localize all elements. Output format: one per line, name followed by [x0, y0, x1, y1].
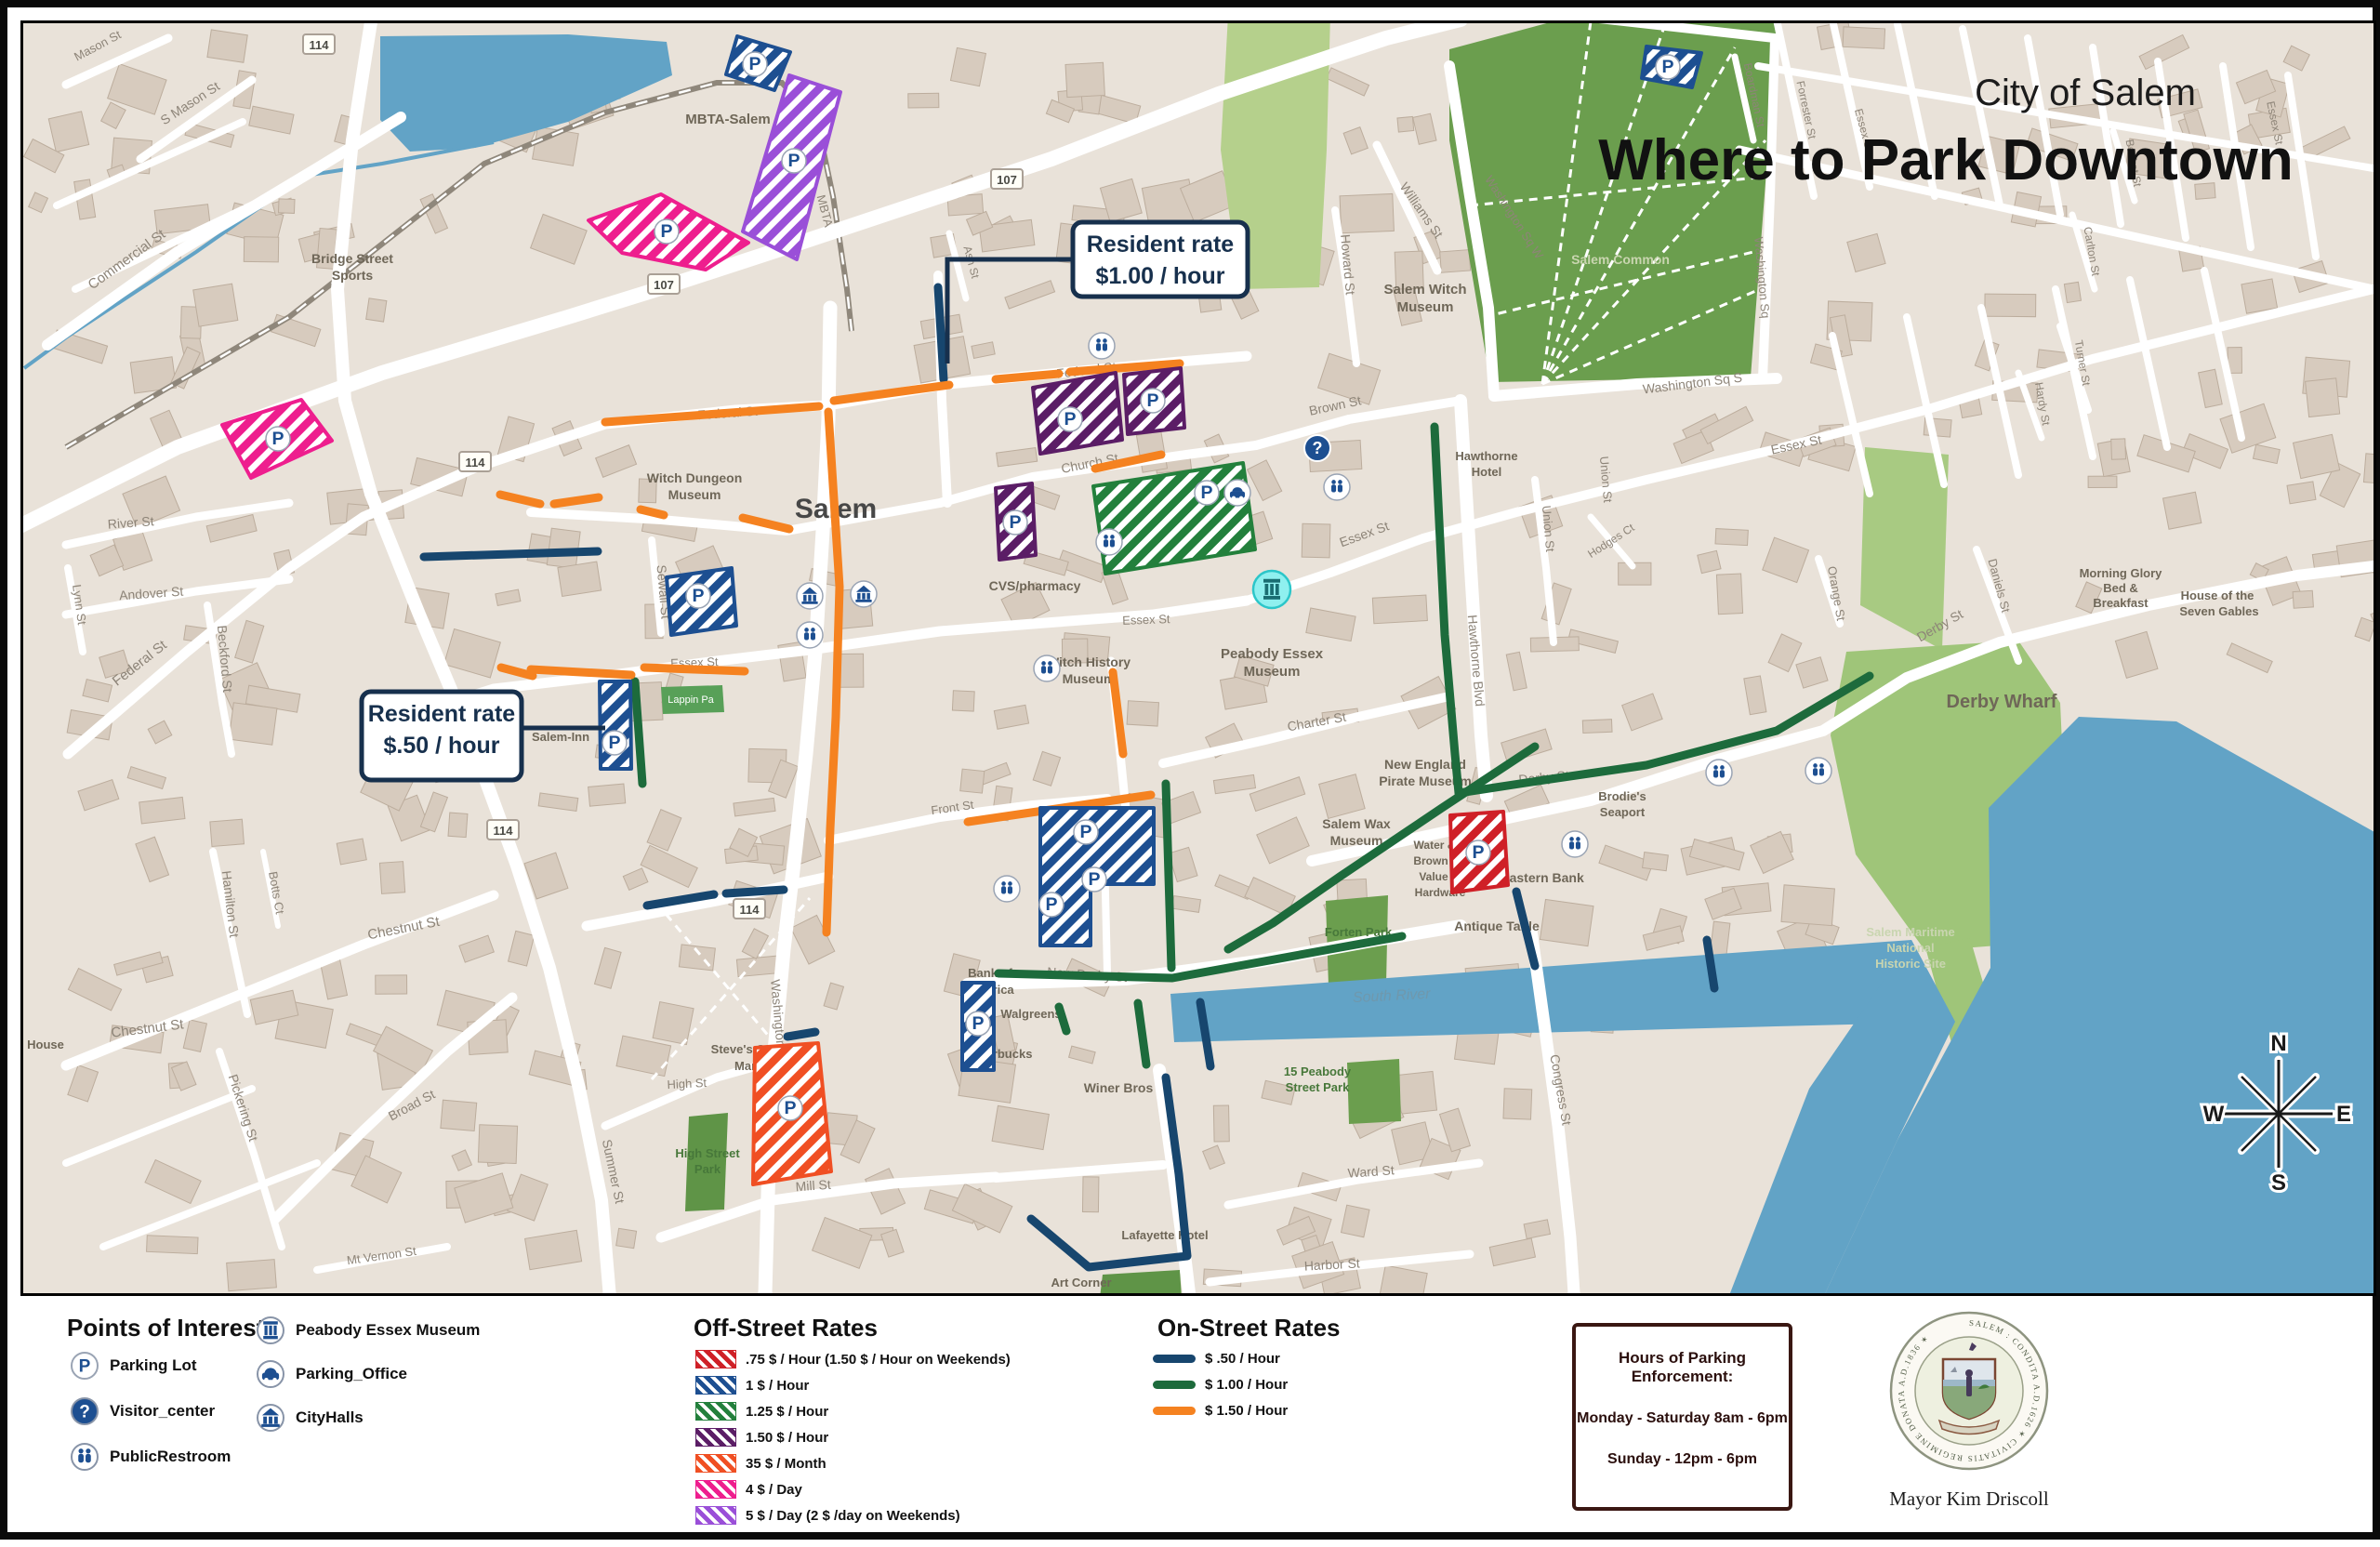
- map-label: Museum: [1397, 299, 1454, 315]
- enforcement-hours-box: Hours of Parking Enforcement: Monday - S…: [1572, 1323, 1792, 1511]
- map-label: Historic Site: [1875, 957, 1946, 971]
- svg-text:Resident rate: Resident rate: [1087, 231, 1234, 258]
- building: [952, 691, 974, 711]
- parking-lot-icon: P: [743, 52, 767, 76]
- offstreet-legend-title: Off-Street Rates: [694, 1314, 878, 1342]
- map-label: Salem Common: [1571, 252, 1670, 267]
- onstreet-rate-line: [531, 669, 631, 675]
- svg-text:P: P: [1045, 894, 1057, 915]
- restroom-icon: [994, 876, 1020, 902]
- map-label: Peabody Essex: [1221, 646, 1324, 662]
- map-label: Street Park: [1286, 1080, 1350, 1094]
- onstreet-rate-line: [938, 287, 944, 379]
- map-label: House of the: [2181, 588, 2254, 602]
- building: [950, 47, 985, 86]
- onstreet-swatch: [1153, 1381, 1196, 1389]
- onstreet-rate-line: [996, 374, 1059, 379]
- building: [207, 30, 247, 62]
- building: [337, 839, 366, 865]
- svg-text:S: S: [2271, 1170, 2286, 1196]
- svg-text:N: N: [2270, 1031, 2286, 1056]
- map-label: Salem Maritime: [1866, 925, 1954, 939]
- building: [48, 112, 88, 152]
- map-label: Lappin Pa: [668, 694, 714, 706]
- offstreet-rate-label: 1 $ / Hour: [746, 1378, 809, 1394]
- map-label: Breakfast: [2093, 596, 2149, 610]
- building: [1698, 550, 1721, 573]
- building: [147, 1236, 198, 1254]
- poi-legend-visitor-label: Visitor_center: [110, 1402, 215, 1421]
- cityhall-icon: [797, 583, 823, 609]
- map-label: Bridge Street: [311, 251, 393, 266]
- onstreet-rate-line: [787, 1032, 815, 1037]
- map-label: Brodie's: [1598, 789, 1646, 803]
- svg-text:W: W: [2203, 1102, 2225, 1127]
- svg-text:P: P: [1472, 842, 1484, 863]
- mayor-name: Mayor Kim Driscoll: [1853, 1487, 2085, 1511]
- svg-text:P: P: [692, 586, 704, 606]
- onstreet-swatch: [1153, 1355, 1196, 1363]
- building: [1716, 574, 1742, 615]
- map-label: Salem Wax: [1322, 816, 1391, 831]
- onstreet-rate-line: [641, 509, 664, 515]
- seal-shield: [1943, 1359, 1995, 1419]
- building: [1372, 595, 1427, 624]
- seal-ring-text: SALEM : CONDITA A.D.1626 ✶ CIVITATIS REG…: [1897, 1318, 2042, 1463]
- building: [441, 1100, 477, 1130]
- parking-lot-icon: P: [1039, 892, 1064, 917]
- building: [2241, 279, 2278, 313]
- parking-map-poster: { "title":{"line1":"City of Salem","line…: [0, 0, 2380, 1540]
- seal-inner-ring: [1915, 1337, 2023, 1445]
- building: [1213, 1105, 1229, 1142]
- parking-lot-r100: P: [1642, 46, 1701, 87]
- map-label: Hotel: [1472, 465, 1502, 479]
- building: [2294, 434, 2340, 478]
- offstreet-swatch-r100: [695, 1376, 736, 1395]
- map-label: Brown: [1413, 854, 1448, 867]
- office-icon: [1224, 480, 1250, 506]
- building: [278, 199, 295, 214]
- building: [1340, 193, 1394, 232]
- map-label: High St: [667, 1076, 707, 1091]
- seal-crest-bird: [1969, 1342, 1977, 1351]
- offstreet-swatch-r125: [695, 1402, 736, 1421]
- building: [2375, 33, 2376, 73]
- map-label: Lafayette Hotel: [1121, 1228, 1208, 1242]
- parking-lot-icon: P: [1141, 389, 1165, 413]
- svg-text:114: 114: [494, 824, 514, 838]
- seal-ship: [1950, 1367, 1957, 1372]
- offstreet-rate-label: 4 $ / Day: [746, 1482, 802, 1498]
- svg-text:114: 114: [740, 903, 760, 917]
- poi-legend-cityhall: CityHalls: [255, 1402, 364, 1434]
- parking-lot-icon: P: [1074, 820, 1098, 844]
- building: [2306, 378, 2340, 417]
- svg-text:P: P: [608, 733, 620, 753]
- svg-text:P: P: [79, 1357, 91, 1377]
- map-label: Derby Wharf: [1947, 692, 2057, 712]
- building: [679, 945, 715, 971]
- seal-sea: [1943, 1380, 1995, 1386]
- offstreet-rate-row: 1.50 $ / Hour: [695, 1428, 828, 1447]
- seal-banner: [1939, 1421, 1999, 1435]
- building: [588, 784, 626, 806]
- svg-text:107: 107: [654, 278, 674, 292]
- parking-lot-m35: P: [753, 1043, 831, 1184]
- building: [1082, 1177, 1098, 1212]
- restroom-icon: [1562, 831, 1588, 857]
- seal-figure-head: [1965, 1369, 1973, 1377]
- route-shield: 114: [303, 34, 335, 54]
- offstreet-swatch-r75: [695, 1350, 736, 1368]
- offstreet-rate-row: 4 $ / Day: [695, 1480, 802, 1499]
- map-label: Mill St: [795, 1177, 831, 1195]
- offstreet-swatch-d4: [695, 1480, 736, 1499]
- svg-text:P: P: [784, 1098, 796, 1118]
- building: [840, 654, 864, 687]
- poi-legend-museum: Peabody Essex Museum: [255, 1315, 480, 1346]
- enforcement-title: Hours of Parking Enforcement:: [1576, 1349, 1789, 1386]
- map-label: CVS/pharmacy: [989, 578, 1081, 593]
- onstreet-rate-line: [424, 551, 598, 557]
- map-label: Museum: [1063, 671, 1116, 686]
- svg-text:114: 114: [466, 456, 486, 469]
- restroom-icon: [1805, 758, 1831, 784]
- map-label: Seven Gables: [2179, 604, 2258, 618]
- svg-text:P: P: [1009, 512, 1021, 533]
- enforcement-line-1: Monday - Saturday 8am - 6pm: [1576, 1410, 1789, 1427]
- parking-lot-r150: P: [1033, 373, 1122, 454]
- building: [1710, 921, 1730, 957]
- poster-title-main: Where to Park Downtown: [1598, 128, 2293, 192]
- poi-legend-cityhall-label: CityHalls: [296, 1408, 364, 1427]
- onstreet-legend-title: On-Street Rates: [1157, 1314, 1341, 1342]
- onstreet-rate-label: $ 1.50 / Hour: [1205, 1403, 1288, 1419]
- svg-text:P: P: [748, 54, 760, 74]
- parking-lot-r150: P: [996, 483, 1036, 560]
- map-label: Museum: [668, 487, 721, 502]
- svg-text:P: P: [271, 429, 284, 449]
- svg-text:P: P: [1200, 483, 1212, 503]
- restroom-icon: [1089, 333, 1115, 359]
- onstreet-rate-label: $ 1.00 / Hour: [1205, 1377, 1288, 1393]
- building: [1781, 885, 1834, 926]
- building: [1843, 27, 1885, 49]
- map-label: House: [27, 1038, 64, 1051]
- route-shield: 114: [487, 820, 519, 840]
- map-label: 15 Peabody: [1284, 1064, 1352, 1078]
- building: [1440, 250, 1471, 273]
- building: [1715, 529, 1748, 546]
- building: [2088, 476, 2117, 487]
- visitor-icon: ?: [1304, 435, 1330, 461]
- parking-lot-icon: P: [966, 1011, 990, 1036]
- parking-lot-icon: P: [266, 427, 290, 451]
- restroom-icon: [1096, 529, 1122, 555]
- building: [448, 813, 468, 838]
- map-label: Witch Dungeon: [647, 470, 743, 485]
- building: [366, 298, 387, 322]
- parking-lot-icon: P: [782, 149, 806, 173]
- parking-lot-r75: P: [1450, 812, 1508, 892]
- offstreet-rate-row: .75 $ / Hour (1.50 $ / Hour on Weekends): [695, 1350, 1011, 1368]
- building: [1127, 701, 1158, 726]
- building: [616, 1228, 637, 1248]
- building: [2064, 282, 2081, 302]
- map-label: Bed &: [2103, 581, 2138, 595]
- parking-lot-r100: P: [962, 983, 994, 1070]
- parking-lot-icon: P: [1466, 840, 1490, 865]
- svg-text:P: P: [1088, 869, 1100, 890]
- building: [960, 769, 985, 793]
- map-label: National: [1886, 941, 1934, 955]
- offstreet-rate-label: 35 $ / Month: [746, 1456, 826, 1472]
- svg-text:P: P: [1064, 409, 1076, 430]
- parking-lot-icon: P: [602, 731, 627, 755]
- building: [1503, 1089, 1532, 1119]
- svg-text:$.50 / hour: $.50 / hour: [383, 733, 499, 759]
- poi-legend-office: Parking_Office: [255, 1358, 407, 1390]
- building: [139, 797, 185, 823]
- map-label: High Street: [675, 1146, 740, 1160]
- seal-palm: [1978, 1384, 1990, 1389]
- onstreet-rate-label: $ .50 / Hour: [1205, 1351, 1280, 1367]
- svg-text:P: P: [660, 221, 672, 242]
- map-label: Morning Glory: [2080, 566, 2163, 580]
- map-canvas[interactable]: Mason StS Mason StCommercial StRiver StA…: [20, 20, 2376, 1296]
- building: [558, 562, 602, 596]
- building: [2163, 492, 2201, 529]
- onstreet-rate-line: [726, 890, 784, 893]
- offstreet-swatch-m35: [695, 1454, 736, 1473]
- restroom-icon: [1706, 760, 1732, 786]
- map-label: Seaport: [1600, 805, 1646, 819]
- offstreet-rate-row: 35 $ / Month: [695, 1454, 826, 1473]
- parking-lot-icon: P: [654, 219, 679, 244]
- svg-text:P: P: [787, 151, 800, 171]
- parking-lot-icon: P: [1003, 510, 1027, 535]
- cityhall-icon: [851, 581, 877, 607]
- map-label: Sports: [332, 268, 374, 283]
- parking-lot-icon: P: [686, 584, 710, 608]
- onstreet-rate-row: $ 1.00 / Hour: [1153, 1377, 1288, 1393]
- building: [376, 975, 407, 994]
- building: [1397, 1071, 1437, 1114]
- offstreet-rate-label: 1.50 $ / Hour: [746, 1430, 828, 1446]
- building: [2363, 454, 2376, 484]
- map-label: Park: [694, 1162, 721, 1176]
- building: [1643, 853, 1669, 871]
- building: [1397, 116, 1414, 132]
- svg-text:?: ?: [1313, 439, 1323, 457]
- seal-ground: [1943, 1385, 1995, 1419]
- svg-text:?: ?: [79, 1403, 90, 1422]
- building: [379, 862, 404, 894]
- building: [2287, 482, 2316, 504]
- restroom-icon: [1034, 655, 1060, 681]
- poi-legend-museum-label: Peabody Essex Museum: [296, 1321, 480, 1340]
- offstreet-rate-label: .75 $ / Hour (1.50 $ / Hour on Weekends): [746, 1352, 1011, 1368]
- parking-lot-r100: P: [667, 568, 736, 635]
- building: [210, 819, 245, 846]
- parking-lot-icon: P: [1082, 867, 1106, 892]
- onstreet-rate-row: $ .50 / Hour: [1153, 1351, 1280, 1367]
- poi-legend-office-label: Parking_Office: [296, 1365, 407, 1383]
- parking-lot-icon: P: [778, 1096, 802, 1120]
- route-shield: 114: [459, 452, 491, 471]
- svg-text:Resident rate: Resident rate: [368, 701, 515, 727]
- offstreet-rate-label: 1.25 $ / Hour: [746, 1404, 828, 1420]
- parking-lot-r150: P: [1124, 368, 1184, 434]
- route-shield: 114: [734, 899, 765, 919]
- building: [229, 703, 277, 745]
- building: [1582, 720, 1612, 734]
- offstreet-rate-row: 1.25 $ / Hour: [695, 1402, 828, 1421]
- map-label: Walgreens: [1000, 1007, 1061, 1021]
- map-label: MBTA-Salem: [685, 112, 770, 127]
- map-label: Museum: [1244, 664, 1301, 680]
- poi-legend-visitor: ?Visitor_center: [69, 1395, 215, 1427]
- park-area: [1347, 1059, 1401, 1124]
- map-label: Harbor St: [1303, 1255, 1360, 1273]
- onstreet-rate-line: [1166, 784, 1171, 968]
- poi-legend-P-label: Parking Lot: [110, 1356, 197, 1375]
- svg-text:$1.00 / hour: $1.00 / hour: [1096, 263, 1225, 289]
- svg-text:P: P: [1661, 57, 1673, 77]
- svg-text:P: P: [972, 1013, 984, 1034]
- route-shield: 107: [991, 169, 1023, 189]
- parking-lot-icon: P: [1195, 481, 1219, 505]
- building: [908, 93, 939, 108]
- pem-icon: [1253, 571, 1290, 608]
- map-label: Salem-Inn: [532, 730, 589, 744]
- offstreet-swatch-r150: [695, 1428, 736, 1447]
- seal-outer-ring: [1891, 1313, 2047, 1469]
- map-label: Art Corner: [1051, 1276, 1111, 1289]
- map-label: Salem Witch: [1383, 282, 1466, 297]
- onstreet-rate-line: [644, 668, 745, 671]
- svg-text:114: 114: [310, 38, 330, 52]
- map-label: Museum: [1330, 833, 1383, 848]
- map-label: Hawthorne: [1455, 449, 1517, 463]
- parking-lot-r100: P: [600, 681, 631, 769]
- enforcement-line-2: Sunday - 12pm - 6pm: [1576, 1451, 1789, 1468]
- poi-legend-restroom-label: PublicRestroom: [110, 1448, 231, 1466]
- offstreet-swatch-d5: [695, 1506, 736, 1525]
- map-label: Essex St: [1122, 612, 1170, 628]
- onstreet-rate-row: $ 1.50 / Hour: [1153, 1403, 1288, 1419]
- map-label: Winer Bros: [1084, 1080, 1154, 1095]
- onstreet-swatch: [1153, 1407, 1196, 1415]
- building: [1985, 294, 2036, 317]
- parking-lot-icon: P: [1058, 407, 1082, 431]
- building: [227, 1260, 277, 1291]
- map-label: Eastern Bank: [1501, 870, 1584, 885]
- building: [1540, 899, 1593, 945]
- restroom-icon: [1324, 474, 1350, 500]
- building: [1065, 62, 1104, 97]
- building: [1302, 523, 1330, 558]
- svg-text:E: E: [2336, 1102, 2351, 1127]
- poi-legend-P: PParking Lot: [69, 1350, 197, 1382]
- seal-figure: [1966, 1376, 1972, 1396]
- offstreet-rate-label: 5 $ / Day (2 $ /day on Weekends): [746, 1508, 960, 1524]
- parking-lot-icon: P: [1656, 55, 1680, 79]
- restroom-icon: [797, 622, 823, 648]
- building: [478, 1125, 517, 1164]
- building: [2111, 439, 2126, 459]
- svg-text:P: P: [1079, 822, 1091, 842]
- building: [244, 237, 278, 262]
- building: [653, 1002, 694, 1045]
- svg-text:107: 107: [997, 173, 1017, 187]
- poi-legend-restroom: PublicRestroom: [69, 1441, 231, 1473]
- building: [2293, 590, 2313, 608]
- city-seal: SALEM : CONDITA A.D.1626 ✶ CIVITATIS REG…: [1885, 1307, 2053, 1474]
- svg-text:P: P: [1146, 390, 1158, 411]
- offstreet-rate-row: 5 $ / Day (2 $ /day on Weekends): [695, 1506, 960, 1525]
- offstreet-rate-row: 1 $ / Hour: [695, 1376, 809, 1395]
- poster-title-city: City of Salem: [1975, 73, 2196, 113]
- map-label: Value: [1419, 870, 1448, 883]
- route-shield: 107: [648, 274, 680, 294]
- building: [193, 284, 238, 326]
- poi-legend-title: Points of Interest: [67, 1314, 264, 1342]
